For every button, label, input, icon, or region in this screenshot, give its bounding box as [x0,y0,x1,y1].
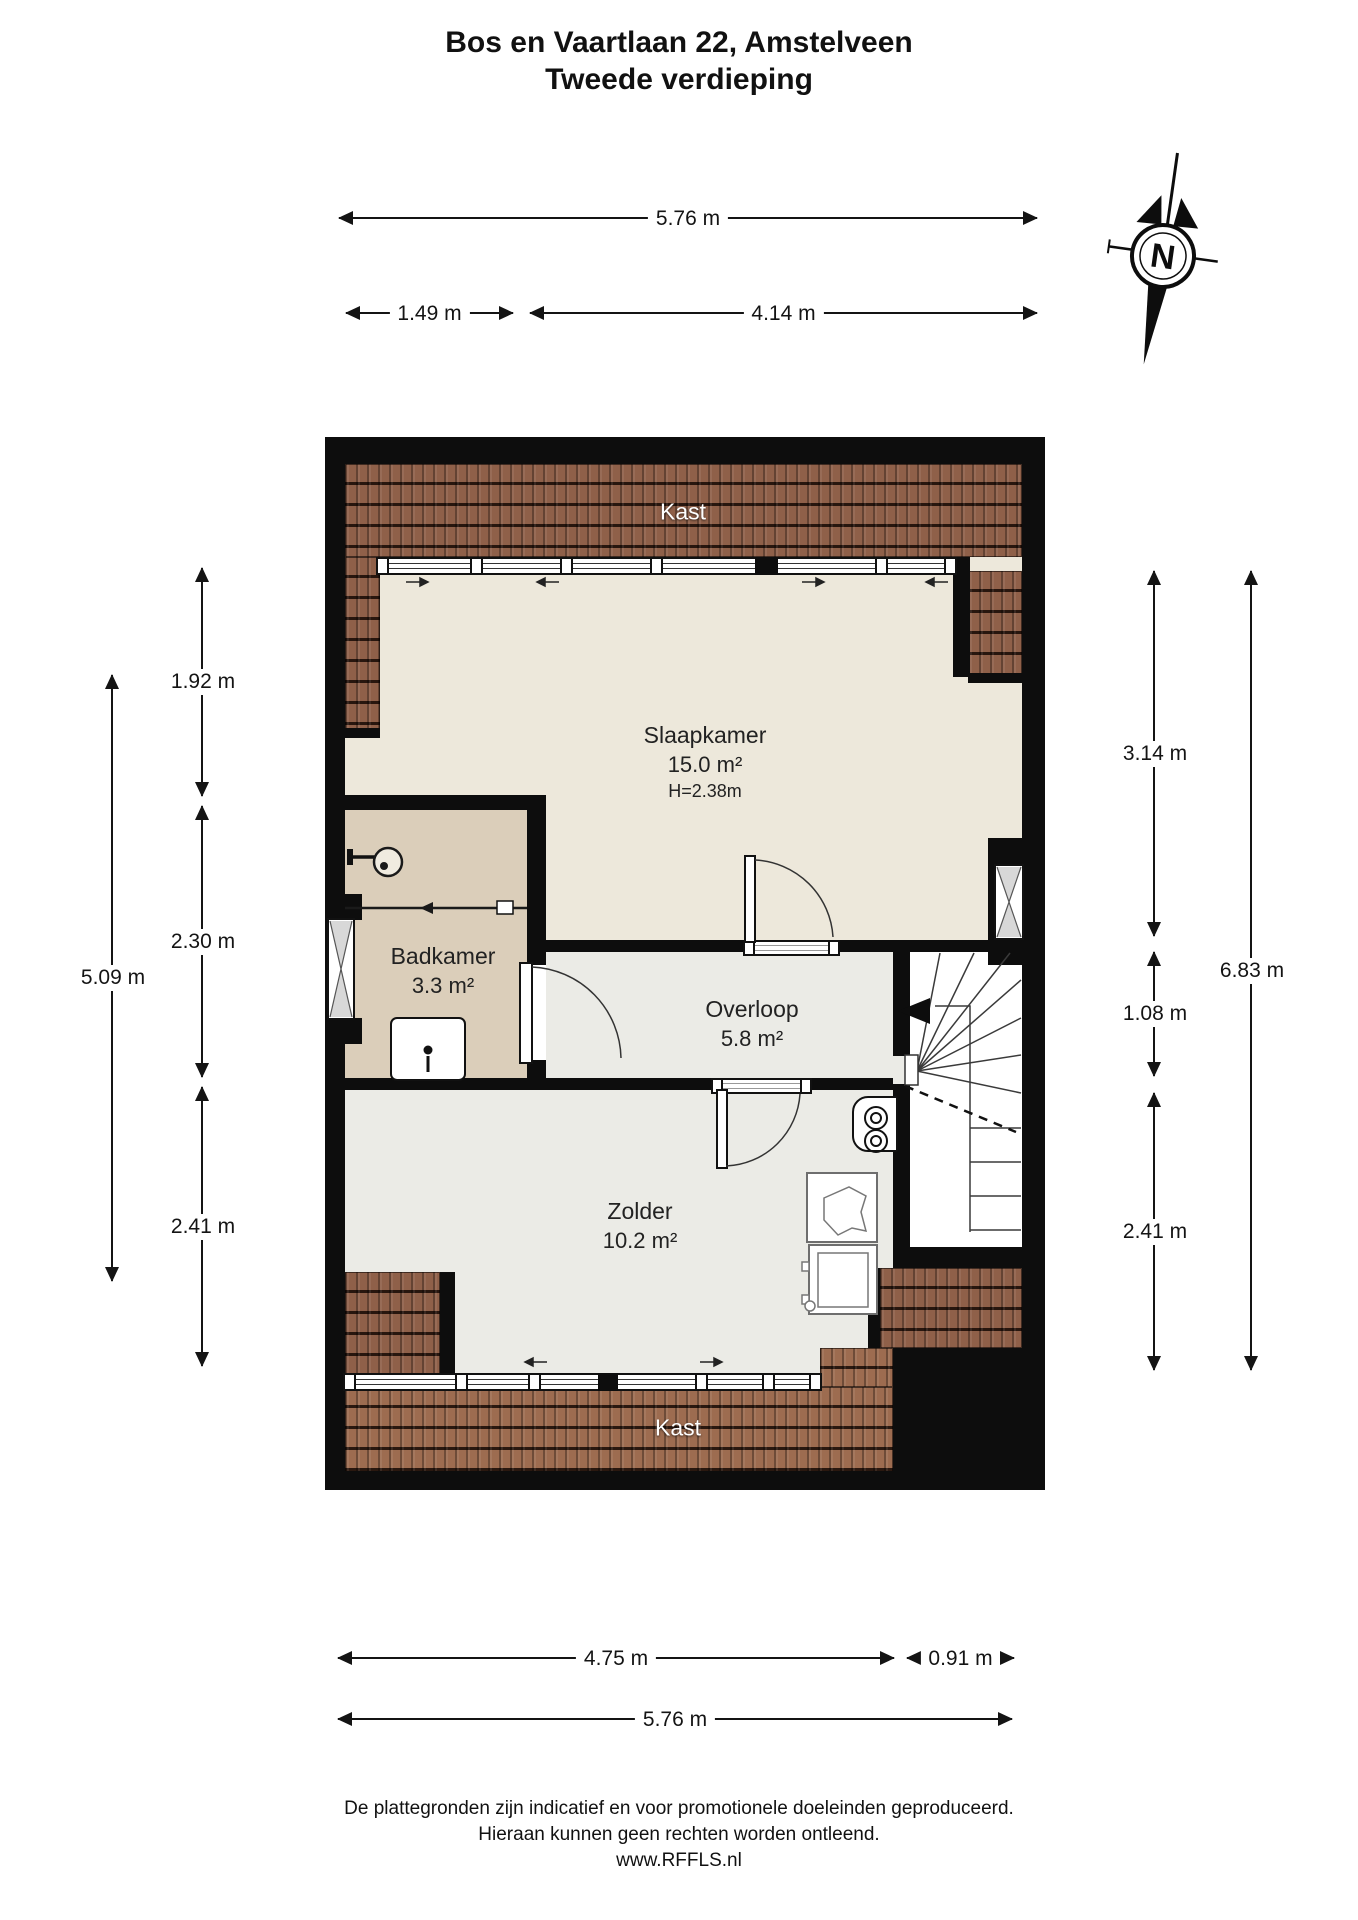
dim-bottom-total: 5.76 m [338,1718,1012,1720]
window-jamb [809,1373,822,1391]
wall-stair-south [893,1247,1045,1268]
wall-eave-cap-left [345,728,380,738]
washing-machine [808,1244,878,1315]
dim-label: 3.14 m [1115,741,1195,767]
dim-bottom-right: 0.91 m [907,1657,1014,1659]
dim-label: 5.76 m [635,1707,715,1733]
wall-overloop-south-right [810,1078,893,1090]
kast-top-label: Kast [660,499,706,526]
wall-eave-cap-right [968,673,1022,683]
roof-step-bottom [820,1348,893,1387]
room-name: Slaapkamer [644,722,767,749]
window-jamb [944,557,957,575]
room-name: Zolder [603,1198,678,1225]
washbasin [390,1017,466,1081]
dim-left-seg1: 1.92 m [201,568,203,796]
roof-patch-bottom-left [345,1272,440,1377]
room-ceiling-height: H=2.38m [644,781,767,802]
window-pier [598,1373,618,1391]
roof-kast-bottom [345,1387,893,1473]
window-mullion [695,1373,708,1391]
dim-top-left: 1.49 m [346,312,513,314]
page-title-line1: Bos en Vaartlaan 22, Amstelveen [0,24,1358,61]
dim-left-outer: 5.09 m [111,675,113,1281]
room-name: Overloop [705,996,798,1023]
dim-bottom-left: 4.75 m [338,1657,894,1659]
stair-entry-gap [893,1056,910,1084]
wall-badkamer-north [345,795,545,810]
wall-slaapkamer-south-left [527,940,745,952]
room-area: 10.2 m² [603,1228,678,1254]
stairwell-floor [910,952,1022,1247]
dim-label: 0.91 m [920,1646,1000,1672]
slaapkamer-label: Slaapkamer 15.0 m² H=2.38m [644,722,767,802]
window-mullion [528,1373,541,1391]
window-mullion [470,557,483,575]
door-threshold-slaapkamer [745,940,838,956]
wall-window-right-block [988,838,1045,965]
window-mullion [875,557,888,575]
dim-label: 4.75 m [576,1646,656,1672]
dim-right-seg2: 1.08 m [1153,952,1155,1076]
window-jamb [343,1373,356,1391]
window-band-top [378,557,955,575]
dim-label: 1.92 m [163,669,243,695]
wall-corner-top-right [953,557,970,677]
roof-eave-right [968,571,1022,675]
window-pier [755,557,778,575]
roof-patch-bottom-right [880,1268,1022,1348]
dim-right-seg1: 3.14 m [1153,571,1155,936]
window-mullion [650,557,663,575]
wall-outer-top [325,437,1045,464]
dim-right-outer: 6.83 m [1250,571,1252,1370]
roof-eave-left [345,557,380,730]
dim-label: 5.09 m [73,965,153,991]
dim-label: 1.49 m [389,301,469,327]
window-mullion [762,1373,775,1391]
dim-label: 2.30 m [163,929,243,955]
boiler [852,1096,898,1152]
dim-right-seg3: 2.41 m [1153,1093,1155,1370]
wall-outer-left [325,437,345,1490]
overloop-label: Overloop 5.8 m² [705,996,798,1052]
disclaimer-line2: Hieraan kunnen geen rechten worden ontle… [0,1822,1358,1848]
door-threshold-zolder [713,1078,810,1094]
disclaimer-website: www.RFFLS.nl [0,1848,1358,1874]
window-band-bottom [345,1373,820,1391]
badkamer-label: Badkamer 3.3 m² [391,943,496,999]
page-title-line2: Tweede verdieping [0,61,1358,98]
dim-label: 2.41 m [163,1214,243,1240]
floorplan-page: Bos en Vaartlaan 22, Amstelveen Tweede v… [0,0,1358,1920]
page-title: Bos en Vaartlaan 22, Amstelveen Tweede v… [0,24,1358,98]
room-name: Badkamer [391,943,496,970]
dim-label: 1.08 m [1115,1001,1195,1027]
disclaimer: De plattegronden zijn indicatief en voor… [0,1796,1358,1874]
window-mullion [560,557,573,575]
zolder-label: Zolder 10.2 m² [603,1198,678,1254]
disclaimer-line1: De plattegronden zijn indicatief en voor… [0,1796,1358,1822]
room-area: 3.3 m² [391,973,496,999]
dim-top-total: 5.76 m [339,217,1037,219]
dim-label: 4.14 m [743,301,823,327]
wall-window-left-bottom-stub [325,1018,362,1044]
wall-mass-bottom-right [893,1348,1045,1490]
dim-left-seg3: 2.41 m [201,1087,203,1366]
kast-bottom-label: Kast [655,1415,701,1442]
laundry-basket [806,1172,878,1243]
dim-label: 5.76 m [648,206,728,232]
window-jamb [376,557,389,575]
dim-label: 6.83 m [1212,958,1292,984]
room-area: 5.8 m² [705,1026,798,1052]
compass-north-label: N [1148,236,1178,277]
wall-stair-west-upper [893,952,910,1056]
dim-label: 2.41 m [1115,1219,1195,1245]
dim-left-seg2: 2.30 m [201,806,203,1077]
dim-top-right: 4.14 m [530,312,1037,314]
room-area: 15.0 m² [644,752,767,778]
compass-rose: N [1093,145,1232,372]
wall-window-left-top-stub [325,894,362,920]
wall-patch-edge-left [440,1272,455,1377]
window-mullion [455,1373,468,1391]
